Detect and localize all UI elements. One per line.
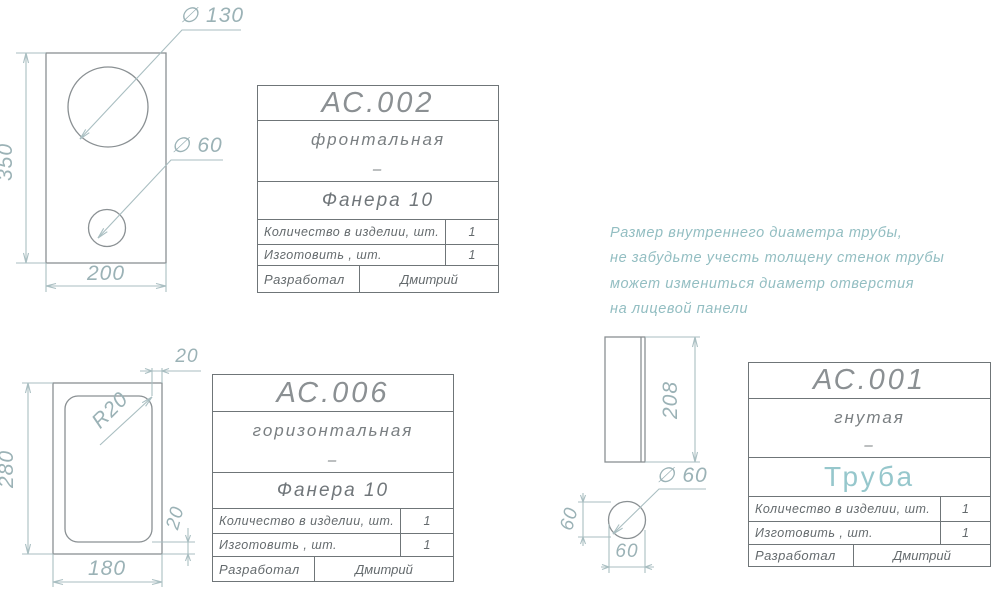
row-label: Разработал [749,545,854,566]
row-label: Количество в изделии, шт. [213,509,401,533]
table-row: Изготовить , шт. 1 [749,522,990,545]
dim-front-width: 200 [86,262,125,285]
part-code: АС.001 [749,363,990,399]
table-row: Изготовить , шт. 1 [213,534,453,557]
row-value: 1 [401,509,453,533]
dim-front-small-hole: ∅ 60 [171,134,223,157]
dim-front-large-hole: ∅ 130 [180,4,244,27]
part-name: горизонтальная [213,421,453,441]
dim-horiz-offset-bottom: 20 [162,504,189,533]
note-line: не забудьте учесть толщену стенок трубы [610,246,970,271]
title-block-ac001: АС.001 гнутая – Труба Количество в издел… [748,362,991,567]
front-panel-outline [46,53,166,263]
dim-horiz-corner-radius: R20 [87,387,133,433]
part-name-cell: горизонтальная – [213,412,453,473]
table-row: Изготовить , шт. 1 [258,245,498,266]
drawing-canvas: 350 200 ∅ 130 ∅ 60 280 [0,0,1000,590]
row-value: 1 [941,497,990,521]
table-row: Количество в изделии, шт. 1 [213,509,453,534]
row-value: 1 [401,534,453,556]
dash-placeholder: – [749,437,990,454]
drawing-note: Размер внутреннего диаметра трубы, не за… [610,221,970,322]
dim-tube-length: 208 [659,381,682,420]
dim-horiz-height: 280 [0,450,18,489]
row-value: Дмитрий [315,557,453,581]
note-line: Размер внутреннего диаметра трубы, [610,221,970,246]
row-label: Разработал [258,266,360,292]
dim-section-diameter: ∅ 60 [656,464,708,487]
row-label: Количество в изделии, шт. [258,220,446,244]
note-line: на лицевой панели [610,297,970,322]
part-name-cell: гнутая – [749,399,990,458]
table-row: Количество в изделии, шт. 1 [258,220,498,245]
dash-placeholder: – [213,452,453,469]
row-label: Изготовить , шт. [749,522,941,544]
part-name-cell: фронтальная – [258,121,498,182]
row-label: Разработал [213,557,315,581]
part-code: АС.006 [213,375,453,412]
front-panel-dimensions: 350 200 ∅ 130 ∅ 60 [0,4,244,292]
dim-front-height: 350 [0,143,17,181]
part-material: Фанера 10 [213,473,453,509]
title-block-ac006: АС.006 горизонтальная – Фанера 10 Количе… [212,374,454,582]
dim-horiz-offset-top: 20 [174,346,198,367]
part-material: Труба [749,458,990,497]
tube-side-dimensions: 208 [645,337,700,462]
tube-section-dimensions: ∅ 60 60 60 [556,464,707,573]
part-name: гнутая [749,408,990,428]
part-code: АС.002 [258,86,498,121]
row-value: 1 [941,522,990,544]
dim-horiz-width: 180 [88,557,126,580]
row-label: Изготовить , шт. [258,245,446,265]
table-row: Разработал Дмитрий [258,266,498,292]
dash-placeholder: – [258,161,498,178]
title-block-ac002: АС.002 фронтальная – Фанера 10 Количеств… [257,85,499,293]
table-row: Разработал Дмитрий [749,545,990,566]
row-value: 1 [446,220,498,244]
row-label: Изготовить , шт. [213,534,401,556]
horizontal-panel-dimensions: 280 180 20 20 R20 [0,346,201,587]
row-label: Количество в изделии, шт. [749,497,941,521]
row-value: Дмитрий [360,266,498,292]
part-material: Фанера 10 [258,182,498,220]
note-line: может измениться диаметр отверстия [610,272,970,297]
tube-side-outline [605,337,645,462]
row-value: 1 [446,245,498,265]
row-value: Дмитрий [854,545,990,566]
dim-section-width: 60 [615,541,638,562]
dim-section-height: 60 [556,505,582,533]
table-row: Разработал Дмитрий [213,557,453,581]
part-name: фронтальная [258,130,498,150]
table-row: Количество в изделии, шт. 1 [749,497,990,522]
